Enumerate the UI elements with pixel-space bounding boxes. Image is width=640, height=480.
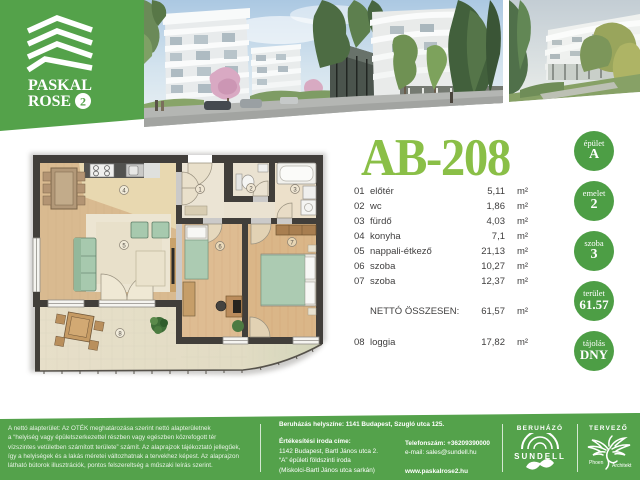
svg-text:Phoen: Phoen [589,460,604,466]
svg-text:ROSE: ROSE [28,93,71,110]
svg-text:Architekt: Architekt [612,463,632,469]
svg-text:PASKAL: PASKAL [28,77,92,94]
svg-text:2: 2 [80,95,86,109]
svg-text:SUNDELL: SUNDELL [514,452,566,461]
